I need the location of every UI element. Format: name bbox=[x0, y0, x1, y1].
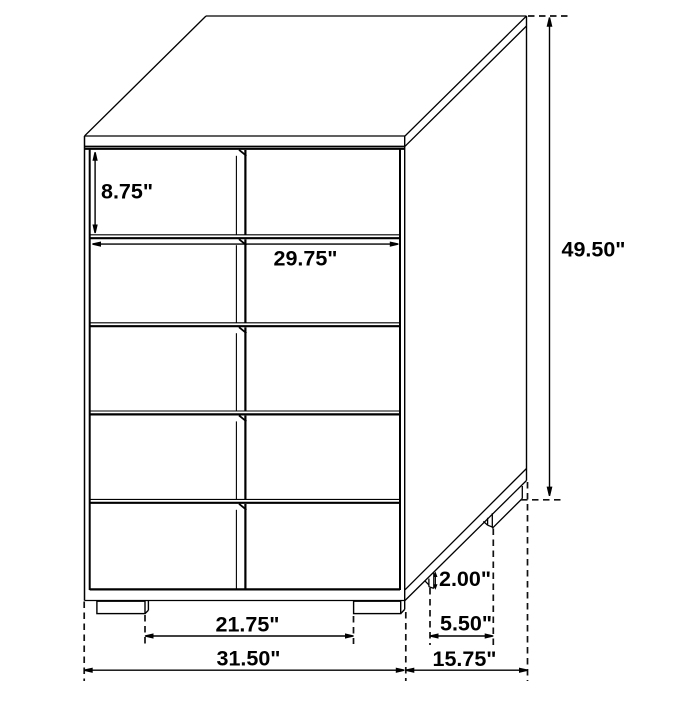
svg-text:31.50": 31.50" bbox=[217, 647, 281, 671]
svg-text:2.00": 2.00" bbox=[439, 567, 491, 591]
svg-text:15.75": 15.75" bbox=[433, 647, 497, 671]
svg-text:21.75": 21.75" bbox=[216, 613, 280, 637]
svg-text:29.75": 29.75" bbox=[274, 247, 338, 271]
svg-text:49.50": 49.50" bbox=[562, 238, 626, 262]
svg-text:5.50": 5.50" bbox=[440, 612, 492, 636]
svg-text:8.75": 8.75" bbox=[101, 180, 153, 204]
